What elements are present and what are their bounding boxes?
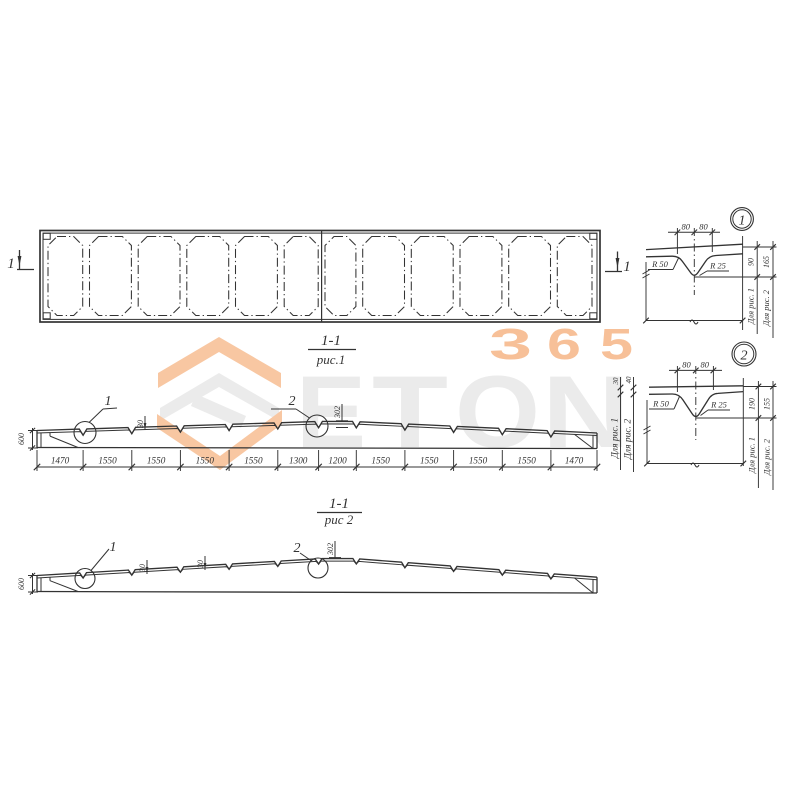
svg-text:80: 80: [682, 360, 691, 370]
svg-text:2: 2: [289, 394, 296, 409]
svg-text:рис.1: рис.1: [316, 352, 346, 367]
svg-text:190: 190: [748, 398, 757, 410]
svg-text:1200: 1200: [328, 455, 347, 465]
svg-text:2: 2: [741, 349, 748, 364]
svg-text:165: 165: [762, 256, 771, 268]
svg-text:155: 155: [763, 398, 772, 410]
svg-text:1-1: 1-1: [329, 496, 349, 512]
svg-text:30: 30: [136, 420, 145, 429]
svg-text:600: 600: [17, 433, 26, 445]
svg-text:R 25: R 25: [710, 400, 727, 410]
svg-text:5: 5: [600, 320, 633, 369]
svg-text:80: 80: [701, 360, 710, 370]
svg-text:1550: 1550: [244, 455, 263, 465]
svg-text:1-1: 1-1: [321, 333, 341, 349]
svg-text:R 50: R 50: [651, 259, 669, 269]
svg-text:302: 302: [333, 406, 342, 419]
svg-text:1550: 1550: [147, 455, 166, 465]
svg-text:1: 1: [105, 394, 112, 409]
svg-text:1550: 1550: [98, 455, 117, 465]
svg-text:30: 30: [196, 560, 205, 569]
svg-text:90: 90: [747, 258, 756, 266]
svg-text:1550: 1550: [517, 455, 536, 465]
svg-text:1550: 1550: [469, 455, 488, 465]
svg-text:E: E: [296, 355, 366, 469]
svg-text:R 50: R 50: [652, 399, 670, 409]
svg-text:30: 30: [138, 564, 147, 573]
svg-text:T: T: [372, 355, 448, 469]
svg-text:1: 1: [739, 214, 746, 229]
svg-text:80: 80: [699, 222, 708, 232]
svg-text:40: 40: [625, 376, 633, 384]
svg-text:30: 30: [612, 377, 620, 386]
svg-text:1300: 1300: [289, 455, 308, 465]
svg-text:1550: 1550: [420, 455, 439, 465]
svg-text:600: 600: [17, 578, 26, 590]
svg-text:R 25: R 25: [709, 261, 726, 271]
svg-text:1550: 1550: [196, 455, 215, 465]
svg-text:1470: 1470: [565, 455, 584, 465]
svg-text:80: 80: [682, 222, 691, 232]
svg-text:1: 1: [7, 256, 15, 272]
svg-text:6: 6: [547, 320, 581, 369]
svg-text:302: 302: [326, 543, 335, 556]
svg-text:1470: 1470: [51, 455, 70, 465]
svg-text:Для рис. 2: Для рис. 2: [762, 438, 772, 476]
svg-text:O: O: [455, 355, 540, 469]
svg-text:рис 2: рис 2: [324, 512, 354, 527]
svg-text:1: 1: [110, 540, 117, 555]
svg-text:Для рис. 1: Для рис. 1: [746, 288, 756, 325]
svg-text:Для рис. 2: Для рис. 2: [761, 289, 771, 327]
svg-text:1550: 1550: [371, 455, 390, 465]
svg-text:3: 3: [489, 320, 532, 369]
svg-text:Для рис. 1: Для рис. 1: [611, 418, 621, 459]
svg-text:1: 1: [623, 259, 631, 275]
svg-text:2: 2: [294, 541, 301, 556]
svg-text:Для рис. 2: Для рис. 2: [624, 419, 634, 460]
svg-text:Для рис. 1: Для рис. 1: [747, 437, 757, 474]
